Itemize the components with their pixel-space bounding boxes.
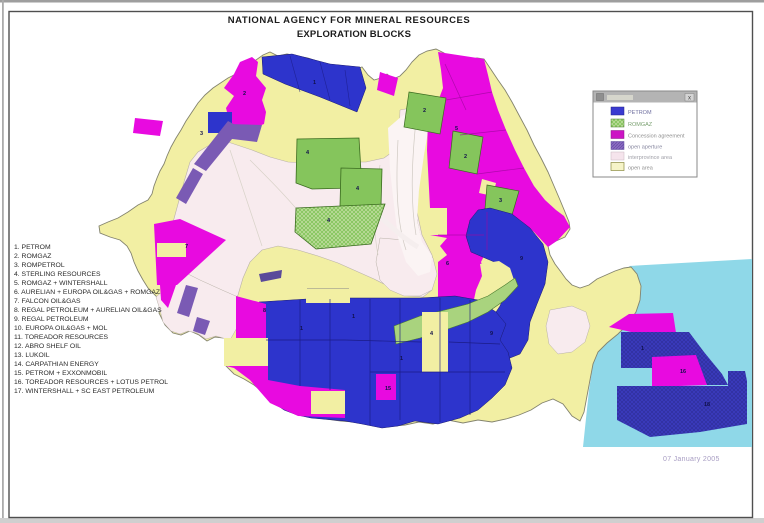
svg-text:3. ROMPETROL: 3. ROMPETROL xyxy=(14,262,65,269)
svg-text:9: 9 xyxy=(520,256,523,262)
svg-text:1. PETROM: 1. PETROM xyxy=(14,244,51,251)
svg-text:1: 1 xyxy=(352,314,355,320)
svg-text:2: 2 xyxy=(423,108,426,114)
svg-text:EXPLORATION BLOCKS: EXPLORATION BLOCKS xyxy=(297,29,411,40)
svg-text:14. CARPATHIAN ENERGY: 14. CARPATHIAN ENERGY xyxy=(14,361,99,368)
svg-text:1: 1 xyxy=(313,80,316,86)
svg-text:6. AURELIAN + EUROPA OIL&GAS: 6. AURELIAN + EUROPA OIL&GAS + ROMGAZ xyxy=(14,289,160,296)
svg-text:16: 16 xyxy=(680,369,686,375)
svg-text:16. TOREADOR RESOURCES + LOTUS: 16. TOREADOR RESOURCES + LOTUS PETROL xyxy=(14,379,168,386)
svg-text:7. FALCON OIL&GAS: 7. FALCON OIL&GAS xyxy=(14,298,81,305)
svg-text:11. TOREADOR RESOURCES: 11. TOREADOR RESOURCES xyxy=(14,334,109,341)
svg-text:Concession agreement: Concession agreement xyxy=(628,134,685,140)
svg-text:PETROM: PETROM xyxy=(628,110,652,116)
svg-text:1: 1 xyxy=(400,356,403,362)
svg-text:17. WINTERSHALL + SC EAST PETR: 17. WINTERSHALL + SC EAST PETROLEUM xyxy=(14,388,155,395)
svg-text:x: x xyxy=(688,96,691,102)
svg-text:2: 2 xyxy=(243,91,246,97)
svg-text:8. REGAL PETROLEUM + AURELIAN: 8. REGAL PETROLEUM + AURELIAN OIL&GAS xyxy=(14,307,162,314)
svg-text:13. LUKOIL: 13. LUKOIL xyxy=(14,352,50,359)
svg-text:07 January 2005: 07 January 2005 xyxy=(663,456,720,463)
svg-text:10. EUROPA OIL&GAS + MOL: 10. EUROPA OIL&GAS + MOL xyxy=(14,325,108,332)
svg-text:2: 2 xyxy=(464,154,467,160)
svg-text:interprovince area: interprovince area xyxy=(628,155,673,161)
svg-text:6: 6 xyxy=(446,261,449,267)
svg-text:1: 1 xyxy=(641,346,644,352)
svg-text:12. ABRO SHELF OIL: 12. ABRO SHELF OIL xyxy=(14,343,81,350)
svg-text:2. ROMGAZ: 2. ROMGAZ xyxy=(14,253,51,260)
svg-text:5: 5 xyxy=(455,126,458,132)
svg-text:8: 8 xyxy=(263,308,266,314)
svg-text:ROMGAZ: ROMGAZ xyxy=(628,122,653,128)
svg-text:9. REGAL PETROLEUM: 9. REGAL PETROLEUM xyxy=(14,316,89,323)
svg-text:4. STERLING RESOURCES: 4. STERLING RESOURCES xyxy=(14,271,101,278)
svg-text:open area: open area xyxy=(628,166,654,172)
svg-text:5. ROMGAZ + WINTERSHALL: 5. ROMGAZ + WINTERSHALL xyxy=(14,280,108,287)
svg-text:NATIONAL AGENCY FOR MINERAL RE: NATIONAL AGENCY FOR MINERAL RESOURCES xyxy=(228,15,471,26)
svg-text:3: 3 xyxy=(499,198,502,204)
svg-text:1: 1 xyxy=(300,326,303,332)
svg-text:7: 7 xyxy=(185,244,188,250)
svg-text:18: 18 xyxy=(704,402,710,408)
svg-text:15. PETROM + EXXONMOBIL: 15. PETROM + EXXONMOBIL xyxy=(14,370,107,377)
svg-text:open aperture: open aperture xyxy=(628,145,662,151)
svg-text:9: 9 xyxy=(490,331,493,337)
svg-text:15: 15 xyxy=(385,386,391,392)
svg-text:3: 3 xyxy=(200,131,203,137)
